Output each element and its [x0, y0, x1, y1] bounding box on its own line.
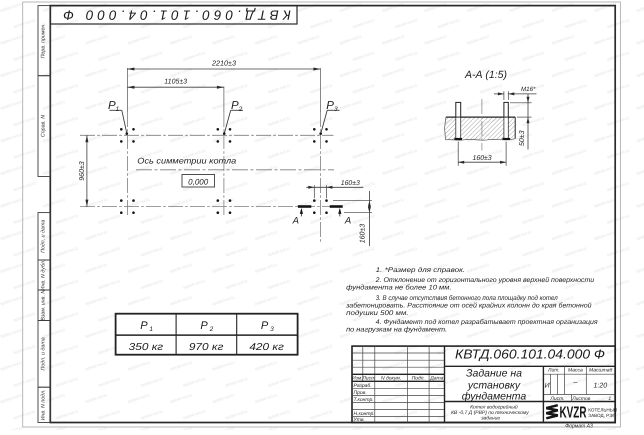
- svg-text:Инв. N дубл.: Инв. N дубл.: [41, 260, 47, 291]
- svg-text:3. В случае отсутствия бето: 3. В случае отсутствия бетонного пола пл…: [376, 295, 558, 302]
- svg-text:Ось симметрии котла: Ось симметрии котла: [137, 156, 236, 165]
- svg-text:Р: Р: [261, 320, 269, 332]
- svg-text:А: А: [292, 216, 299, 227]
- svg-text:1: 1: [149, 326, 153, 333]
- svg-text:3: 3: [270, 326, 274, 333]
- svg-text:4. Фундамент под котел раз: 4. Фундамент под котел разрабатывает про…: [376, 319, 598, 326]
- svg-text:фундамента не более 10 мм.: фундамента не более 10 мм.: [346, 285, 452, 292]
- svg-text:Разраб.: Разраб.: [354, 383, 372, 389]
- svg-text:Р: Р: [140, 320, 148, 332]
- svg-text:Пров.: Пров.: [354, 390, 367, 396]
- svg-text:1: 1: [608, 396, 611, 402]
- svg-text:Изм.: Изм.: [352, 376, 363, 382]
- svg-text:Лист: Лист: [361, 376, 375, 382]
- svg-text:ЗАВОД, РЭП: ЗАВОД, РЭП: [588, 413, 616, 418]
- svg-text:задание: задание: [480, 416, 500, 422]
- svg-text:1. *Размер для справок.: 1. *Размер для справок.: [376, 267, 466, 274]
- svg-text:Формат А3: Формат А3: [565, 424, 593, 430]
- svg-text:970 кг: 970 кг: [189, 342, 224, 353]
- svg-text:160±3: 160±3: [360, 224, 367, 244]
- svg-text:–: –: [572, 380, 577, 387]
- svg-text:забетонировать. Расстояние о: забетонировать. Расстояние от осей крайн…: [345, 301, 592, 309]
- svg-text:КВТД.060.101.04.000 Ф: КВТД.060.101.04.000 Ф: [455, 347, 605, 362]
- svg-text:Лит.: Лит.: [547, 368, 560, 374]
- svg-text:Утв.: Утв.: [354, 417, 365, 423]
- svg-text:KVZR: KVZR: [560, 405, 587, 422]
- svg-text:Задание на: Задание на: [466, 367, 522, 379]
- svg-text:Справ. N: Справ. N: [41, 115, 47, 137]
- svg-text:Перв. примен.: Перв. примен.: [41, 23, 47, 58]
- svg-text:Масштаб: Масштаб: [589, 368, 613, 374]
- svg-text:Взам. инв. N: Взам. инв. N: [41, 290, 47, 321]
- svg-text:160±3: 160±3: [473, 155, 492, 162]
- svg-text:0,000: 0,000: [188, 177, 209, 186]
- svg-text:по нагрузкам на фундамент.: по нагрузкам на фундамент.: [346, 326, 447, 333]
- svg-text:Р: Р: [200, 320, 208, 332]
- svg-text:50±3: 50±3: [519, 130, 526, 146]
- svg-text:Листов: Листов: [571, 396, 591, 402]
- svg-text:Лист.: Лист.: [549, 396, 564, 402]
- svg-text:1:20: 1:20: [593, 382, 607, 389]
- svg-text:160±3: 160±3: [341, 180, 360, 187]
- svg-text:КВТД.060.101.04.000 Ф: КВТД.060.101.04.000 Ф: [59, 7, 291, 22]
- svg-text:установку: установку: [467, 379, 521, 391]
- svg-text:N докум.: N докум.: [381, 376, 401, 382]
- svg-text:350 кг: 350 кг: [129, 342, 164, 353]
- svg-text:А: А: [344, 216, 351, 227]
- svg-text:подушки 500 мм.: подушки 500 мм.: [346, 310, 409, 317]
- svg-text:Подп. и дата: Подп. и дата: [41, 220, 47, 253]
- svg-text:Инв. N подл.: Инв. N подл.: [41, 389, 47, 420]
- svg-text:КОТЕЛЬНЫЙ: КОТЕЛЬНЫЙ: [588, 406, 617, 412]
- svg-text:М16*: М16*: [521, 86, 536, 93]
- svg-text:Подп.: Подп.: [412, 376, 425, 382]
- svg-text:1105±3: 1105±3: [164, 79, 187, 86]
- svg-text:А-А (1:5): А-А (1:5): [464, 69, 507, 81]
- svg-text:Подп. и дата: Подп. и дата: [41, 337, 47, 370]
- svg-text:2: 2: [209, 326, 214, 333]
- svg-text:Масса: Масса: [568, 368, 583, 374]
- svg-text:Т.контр.: Т.контр.: [354, 397, 374, 403]
- svg-text:Дата: Дата: [429, 376, 443, 382]
- svg-text:2210±3: 2210±3: [211, 58, 236, 67]
- svg-text:2. Отклонение от горизонтал: 2. Отклонение от горизонтального уровня …: [375, 276, 595, 284]
- svg-text:фундамента: фундамента: [462, 391, 527, 403]
- svg-text:960±3: 960±3: [79, 161, 86, 181]
- svg-text:420 кг: 420 кг: [249, 342, 284, 353]
